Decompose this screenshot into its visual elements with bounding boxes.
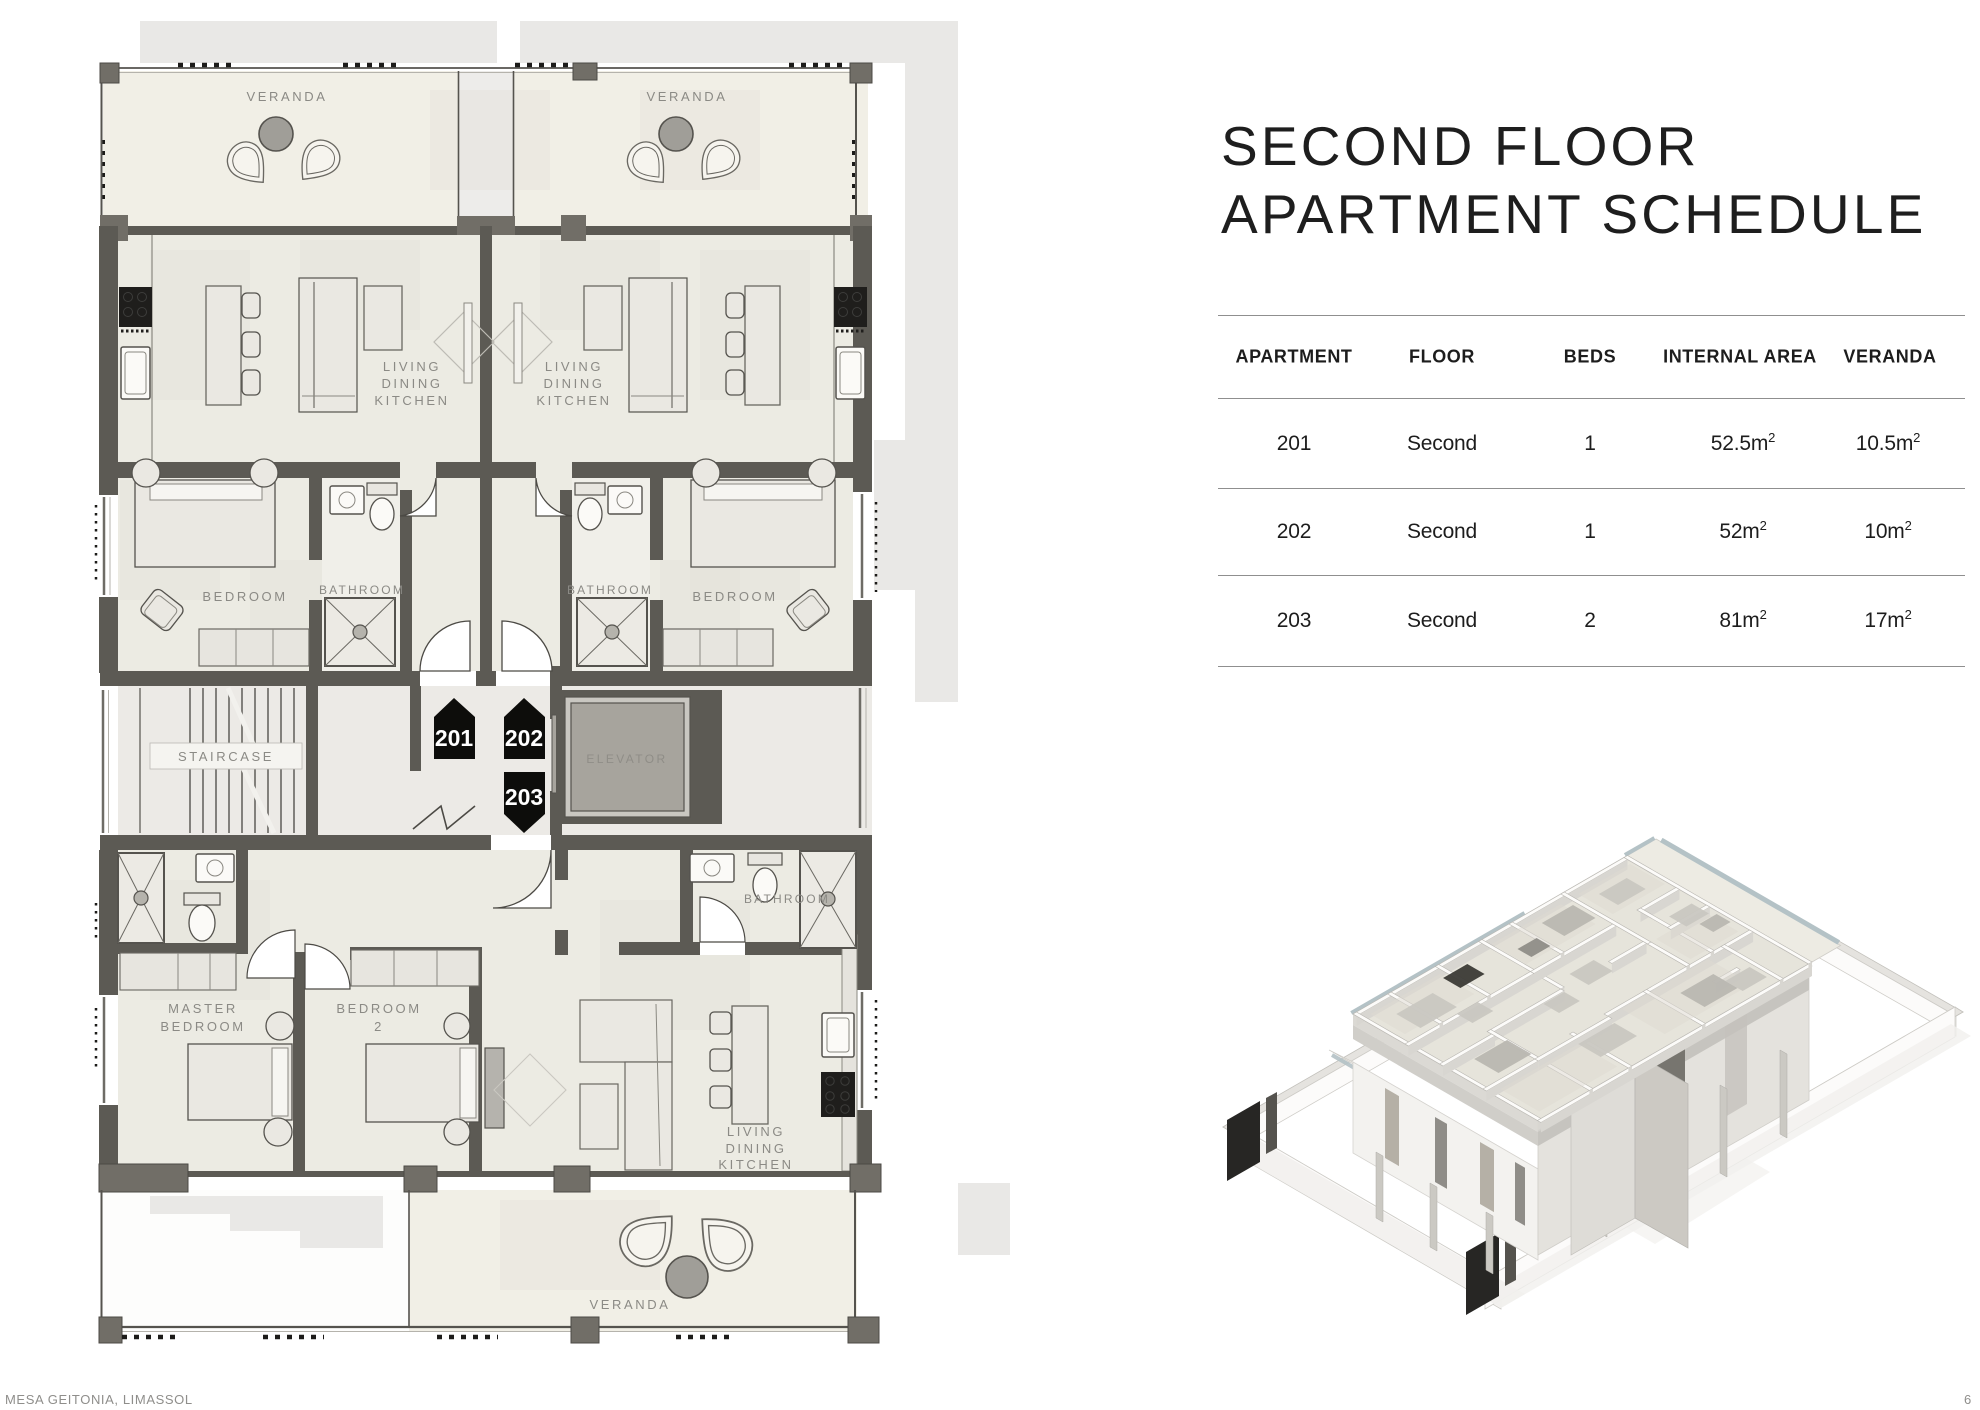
svg-text:203: 203 — [505, 784, 543, 810]
svg-text:KITCHEN: KITCHEN — [718, 1157, 793, 1172]
svg-text:DINING: DINING — [381, 376, 442, 391]
svg-text:LIVING: LIVING — [727, 1124, 785, 1139]
svg-text:202: 202 — [505, 725, 543, 751]
svg-text:BEDROOM: BEDROOM — [202, 589, 287, 604]
svg-text:BATHROOM: BATHROOM — [319, 583, 405, 597]
svg-text:STAIRCASE: STAIRCASE — [178, 749, 274, 764]
svg-text:ELEVATOR: ELEVATOR — [586, 752, 667, 766]
svg-text:201: 201 — [435, 725, 474, 751]
svg-text:KITCHEN: KITCHEN — [374, 393, 449, 408]
svg-text:BATHROOM: BATHROOM — [567, 583, 653, 597]
svg-text:VERANDA: VERANDA — [589, 1297, 670, 1312]
svg-text:2: 2 — [374, 1019, 384, 1034]
svg-text:BATHROOM: BATHROOM — [744, 892, 830, 906]
svg-text:BEDROOM: BEDROOM — [692, 589, 777, 604]
svg-text:DINING: DINING — [725, 1141, 786, 1156]
svg-text:MASTER: MASTER — [168, 1001, 238, 1016]
svg-text:KITCHEN: KITCHEN — [536, 393, 611, 408]
svg-text:VERANDA: VERANDA — [646, 89, 727, 104]
svg-text:LIVING: LIVING — [383, 359, 441, 374]
svg-text:DINING: DINING — [543, 376, 604, 391]
svg-text:BEDROOM: BEDROOM — [160, 1019, 245, 1034]
svg-text:BEDROOM: BEDROOM — [336, 1001, 421, 1016]
svg-text:LIVING: LIVING — [545, 359, 603, 374]
svg-text:VERANDA: VERANDA — [246, 89, 327, 104]
